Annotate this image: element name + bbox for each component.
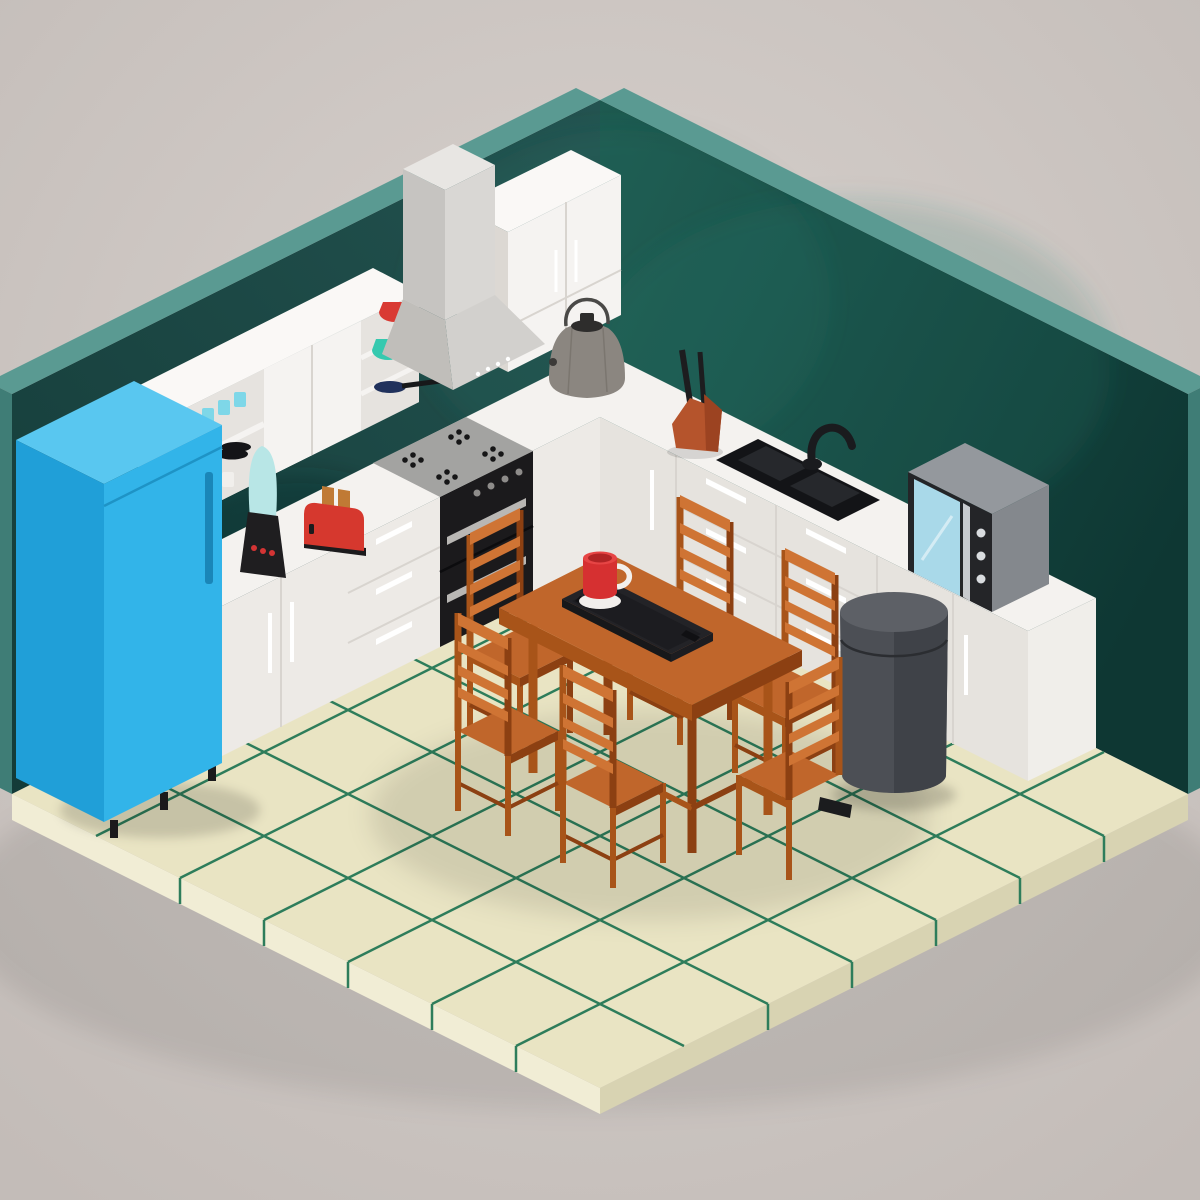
oven-knob [474, 490, 481, 497]
microwave-button [977, 575, 986, 584]
microwave-button [977, 529, 986, 538]
kettle-spout [549, 358, 557, 366]
microwave-handle [963, 503, 970, 601]
frying-pan [374, 381, 406, 393]
fridge-handle [205, 472, 213, 584]
oven-knob [502, 476, 509, 483]
isometric-kitchen-scene: Low-poly isometric kitchen 3D render Iso… [0, 0, 1200, 1200]
mug-interior [588, 554, 612, 563]
blender-button [269, 550, 275, 556]
fridge-door [104, 425, 222, 822]
fridge-foot [160, 792, 168, 810]
hood-chimney-front [445, 165, 495, 320]
fridge-side [16, 440, 104, 822]
trash-body-shade [894, 612, 948, 793]
blender-button [251, 545, 257, 551]
blender-button [260, 548, 266, 554]
microwave-button [977, 552, 986, 561]
toast-slice [338, 489, 350, 509]
kettle-knob [580, 313, 594, 322]
toaster-lever [309, 524, 314, 534]
trash-lid [840, 592, 948, 632]
hood-chimney-side [403, 169, 445, 320]
left-wall-outer-edge [0, 382, 12, 794]
fridge-foot [110, 820, 118, 838]
kettle-body [549, 323, 625, 398]
oven-knob [516, 469, 523, 476]
kitchen-render: Low-poly isometric kitchen 3D render Iso… [0, 0, 1200, 1200]
oven-knob [488, 483, 495, 490]
toast-slice [322, 486, 334, 506]
right-wall-outer-edge [1188, 382, 1200, 794]
